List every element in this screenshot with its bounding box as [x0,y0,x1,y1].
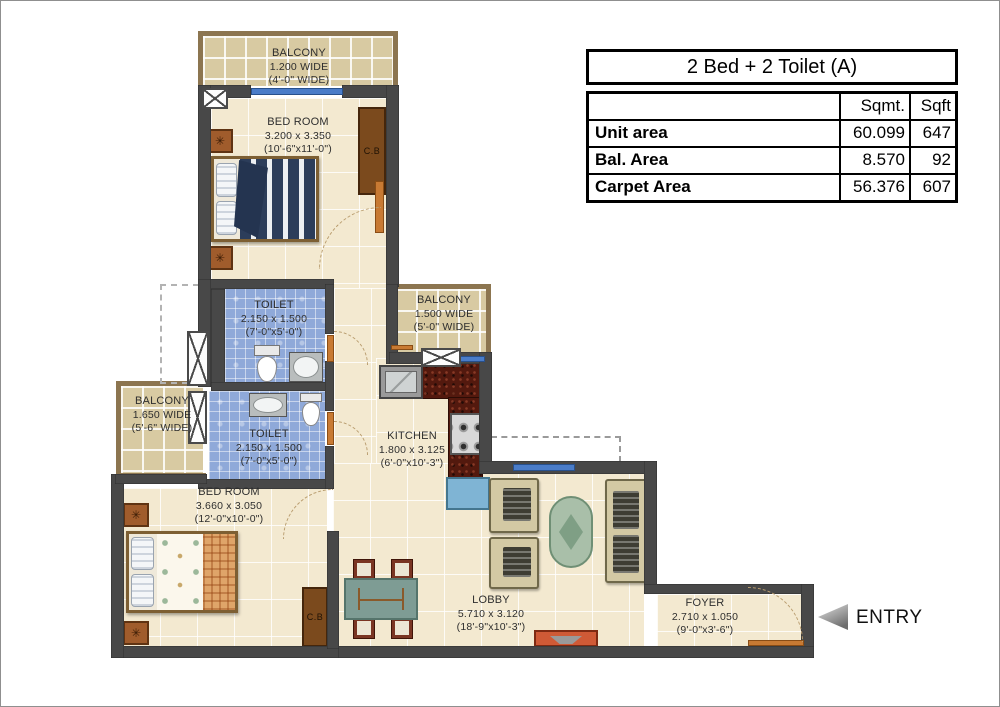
lobby-chair-2 [489,537,539,589]
wall [198,85,211,287]
nightstand: ✳ [123,621,149,645]
row-sqmt: 60.099 [839,119,909,146]
window [251,88,343,95]
wall [115,474,207,484]
area-table: 2 Bed + 2 Toilet (A) Sqmt. Sqft Unit are… [586,49,958,203]
balcony-right-door [391,345,413,350]
cupboard-bottom: C.B [302,587,328,647]
room-label-balcony-left: BALCONY 1.650 WIDE (5'-6" WIDE) [112,394,212,436]
window [513,464,575,471]
wall [644,461,657,594]
col-header-blank [589,94,839,119]
room-label-bedroom-top: BED ROOM 3.200 x 3.350 (10'-6"x11'-0") [243,115,353,157]
lobby-chair-1 [489,478,539,533]
room-label-balcony-top: BALCONY 1.200 WIDE (4'-0" WIDE) [244,46,354,88]
wall [198,279,334,289]
room-label-bedroom-bottom: BED ROOM 3.660 x 3.050 (12'-0"x10'-0") [174,485,284,527]
wall [111,474,124,658]
room-label-kitchen: KITCHEN 1.800 x 3.125 (6'-0"x10'-3") [357,429,467,471]
area-table-title: 2 Bed + 2 Toilet (A) [586,49,958,85]
row-label: Unit area [589,119,839,146]
wall [325,446,334,489]
wall [479,352,492,474]
wall [386,85,399,287]
wall [325,361,334,411]
room-label-lobby: LOBBY 5.710 x 3.120 (18'-9"x10'-3") [436,593,546,635]
window-x [202,88,228,109]
window-x [421,348,461,367]
wash-area [446,477,490,510]
toilet-bottom-door [327,412,334,445]
bed-top [211,156,319,242]
row-label: Carpet Area [589,173,839,200]
entry-arrow-icon [818,604,848,630]
dining-chair [391,617,413,639]
wall [644,584,814,594]
bed-bottom [126,531,238,613]
coffee-table [549,496,593,568]
toilet-top-wc-tank [254,345,280,356]
nightstand: ✳ [123,503,149,527]
room-label-balcony-right: BALCONY 1.500 WIDE (5'-0" WIDE) [394,293,494,335]
wall [111,646,339,658]
row-sqft: 647 [909,119,955,146]
dining-chair [353,559,375,580]
dining-chair [391,559,413,580]
shaft-x [187,331,209,386]
room-label-foyer: FOYER 2.710 x 1.050 (9'-0"x3'-6") [650,596,760,638]
floor-plan-sheet: ✳ ✳ C.B ✳ ✳ C.B [0,0,1000,707]
toilet-bottom-basin [249,393,287,417]
row-sqmt: 8.570 [839,146,909,173]
wall [331,646,814,658]
area-table-grid: Sqmt. Sqft Unit area 60.099 647 Bal. Are… [586,91,958,203]
wall [327,531,339,649]
row-sqft: 92 [909,146,955,173]
lobby-dashed-outline [491,436,621,462]
kitchen-sink [379,365,423,399]
row-sqft: 607 [909,173,955,200]
col-header-sqmt: Sqmt. [839,94,909,119]
wall [211,382,334,391]
dining-chair [353,617,375,639]
room-label-toilet-top: TOILET 2.150 x 1.500 (7'-0"x5'-0") [219,298,329,340]
row-label: Bal. Area [589,146,839,173]
row-sqmt: 56.376 [839,173,909,200]
toilet-bottom-wc-tank [300,393,322,402]
room-label-toilet-bottom: TOILET 2.150 x 1.500 (7'-0"x5'-0") [214,427,324,469]
dining-table [344,578,418,620]
entry-label: ENTRY [856,607,923,629]
col-header-sqft: Sqft [909,94,955,119]
toilet-top-basin [289,352,323,382]
